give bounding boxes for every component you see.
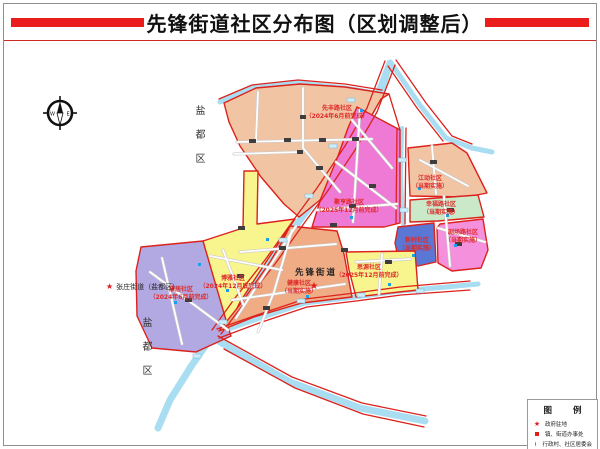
legend-title: 图 例 [533,404,592,416]
legend-item-committee: 行政村、社区居委会 [533,439,592,449]
region-label-juchang: 剧场路社区（当期实施） [445,229,481,245]
legend-item-label: 政府驻地 [545,420,567,428]
legend-item-label: 镇、街道办事处 [545,430,584,438]
red-square-icon [535,432,539,436]
district-label-yandu-bottom: 盐都区 [140,317,150,389]
legend-item-street-office: 镇、街道办事处 [533,429,592,439]
compass-east-label: E [67,112,70,118]
district-label-yandu-top: 盐都区 [193,105,203,177]
region-label-xingfu: 幸福路社区（当期实施） [423,201,459,217]
compass-icon: W E [43,96,77,130]
neighbor-street: ★ 张庄街道（盐都区） [106,282,179,292]
legend-item-government: ★ 政府驻地 [533,419,592,429]
star-icon: ★ [533,421,541,428]
map-graphic: W E [4,41,596,445]
region-label-juheng: 聚亨路社区（2025年12月前完成） [315,199,382,215]
neighbor-street-label: 张庄街道（盐都区） [116,282,179,292]
blue-dot-icon [535,442,536,446]
title-rule-right-icon [485,18,589,27]
region-juchang [437,219,488,271]
legend-item-label: 行政村、社区居委会 [542,440,592,448]
street-office-label: 先锋街道 [295,266,337,278]
region-label-siyuan: 思源社区（2025年12月前完成） [335,264,402,280]
region-label-xianfenglu: 先丰路社区（2024年6月前完成） [306,105,369,121]
region-label-jiangdong: 江动社区（当期实施） [412,175,448,191]
title-bar: 先锋街道社区分布图（区划调整后） [4,4,596,41]
region-label-xincun: 新村社区（当期实施） [399,237,435,253]
compass-west-label: W [50,112,55,118]
neighbor-star-icon: ★ [106,283,113,291]
title-rule-left-icon [11,18,144,27]
page-title: 先锋街道社区分布图（区划调整后） [144,8,485,37]
map-canvas: W E 盐都区 盐都区 先丰路社区（2024年6月前完成） 聚亨路社区（2025… [4,41,596,445]
legend: 图 例 ★ 政府驻地 镇、街道办事处 行政村、社区居委会 区划调整范围 [527,399,598,449]
street-office-star-icon: ★ [310,282,319,292]
map-page: 先锋街道社区分布图（区划调整后） [0,0,600,449]
